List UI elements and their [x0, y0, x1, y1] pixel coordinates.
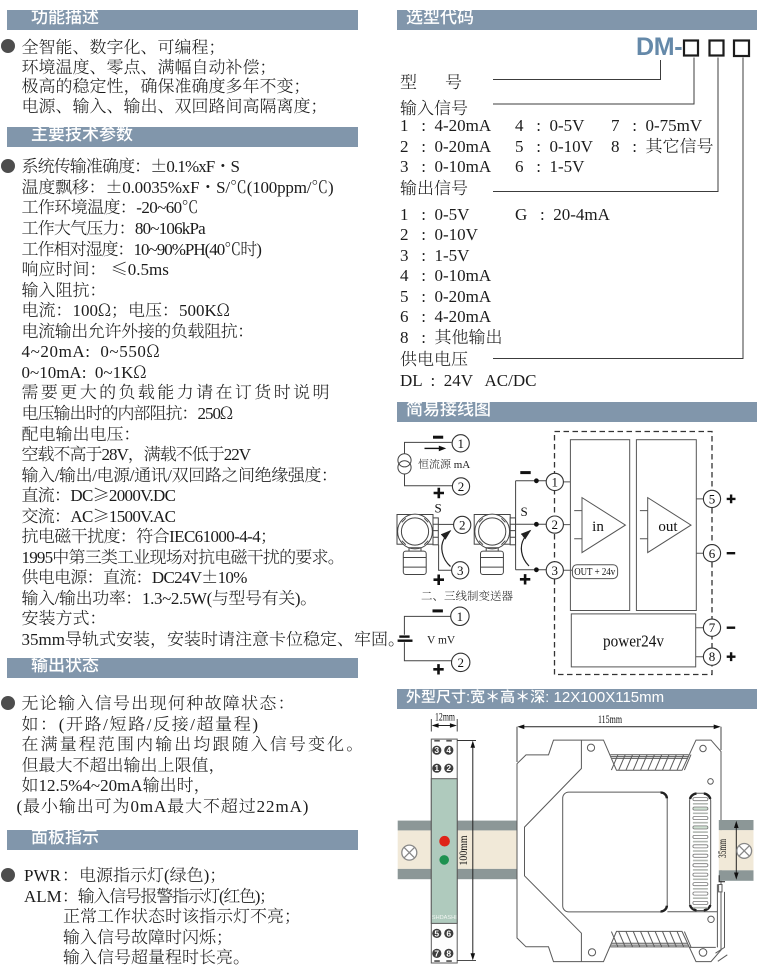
svg-text:35mm: 35mm: [717, 839, 729, 858]
svg-text:S: S: [435, 501, 442, 516]
svg-text:恒流源 mA: 恒流源 mA: [418, 456, 470, 472]
svg-text:in: in: [592, 519, 604, 535]
svg-text:2: 2: [459, 517, 466, 532]
svg-text:7: 7: [709, 620, 716, 635]
svg-text:1: 1: [434, 763, 439, 773]
svg-text:二、三线制变送器: 二、三线制变送器: [421, 588, 513, 604]
svg-text:5: 5: [709, 491, 716, 506]
svg-text:V mV: V mV: [427, 635, 456, 647]
svg-text:S: S: [521, 504, 528, 519]
svg-text:power24v: power24v: [603, 632, 665, 651]
svg-text:1: 1: [552, 474, 559, 489]
svg-text:1: 1: [457, 436, 464, 451]
svg-text:3: 3: [552, 563, 559, 578]
svg-text:6: 6: [446, 928, 451, 938]
svg-text:out: out: [658, 519, 678, 535]
svg-text:5: 5: [434, 928, 439, 938]
svg-text:2: 2: [458, 479, 465, 494]
svg-text:6: 6: [709, 546, 716, 561]
svg-text:3: 3: [434, 745, 439, 755]
svg-text:8: 8: [709, 649, 716, 664]
svg-text:100mm: 100mm: [456, 835, 470, 866]
svg-text:115mm: 115mm: [598, 714, 622, 726]
svg-text:1: 1: [457, 609, 464, 624]
svg-text:2: 2: [446, 763, 451, 773]
svg-text:4: 4: [446, 745, 451, 755]
svg-text:8: 8: [446, 948, 451, 958]
svg-text:2: 2: [552, 517, 559, 532]
svg-text:SHDASHI: SHDASHI: [432, 915, 457, 921]
svg-text:7: 7: [434, 948, 439, 958]
svg-text:OUT + 24v: OUT + 24v: [574, 567, 615, 578]
svg-text:3: 3: [457, 563, 464, 578]
svg-text:12mm: 12mm: [435, 712, 455, 724]
svg-text:2: 2: [457, 655, 464, 670]
